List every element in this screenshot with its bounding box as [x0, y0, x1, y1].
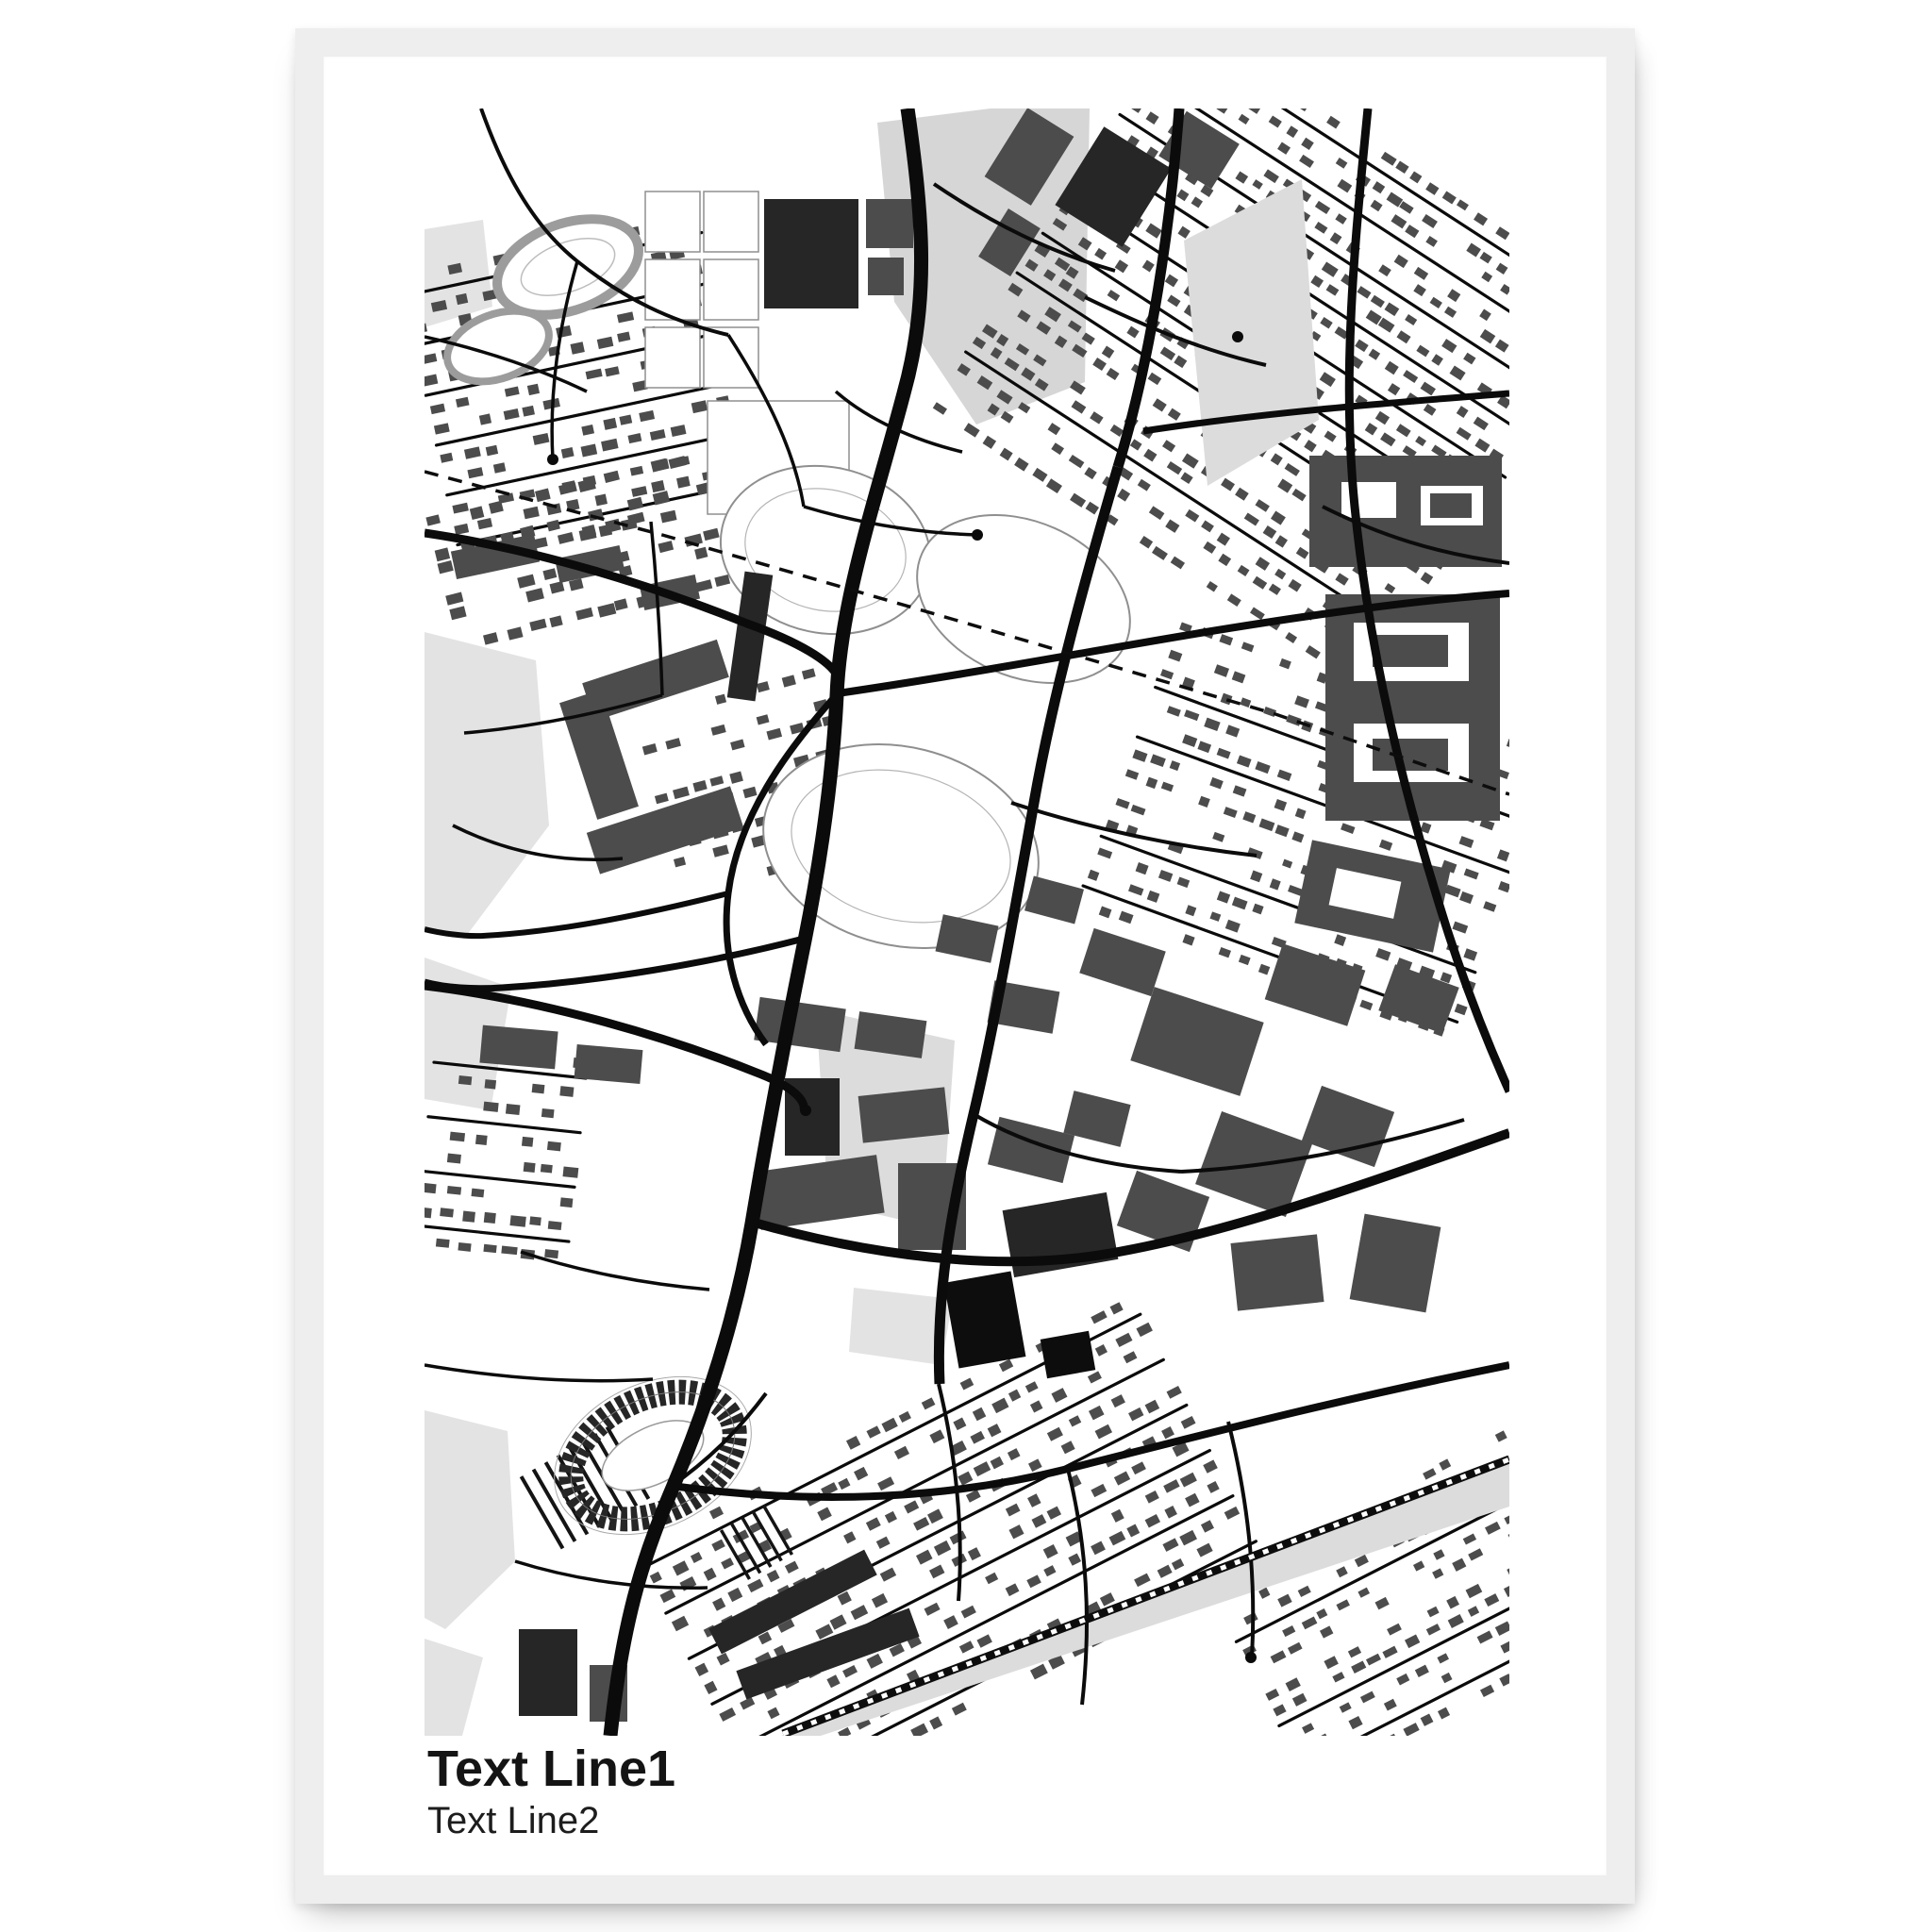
poster-sheet: Text Line1 Text Line2	[324, 57, 1607, 1875]
poster-subtitle: Text Line2	[427, 1799, 675, 1842]
city-map-svg	[425, 108, 1509, 1736]
poster-title: Text Line1	[427, 1741, 675, 1796]
page-root: Text Line1 Text Line2	[0, 0, 1932, 1932]
map-canvas	[425, 108, 1509, 1736]
map-caption: Text Line1 Text Line2	[427, 1741, 675, 1842]
poster-frame: Text Line1 Text Line2	[295, 28, 1635, 1904]
